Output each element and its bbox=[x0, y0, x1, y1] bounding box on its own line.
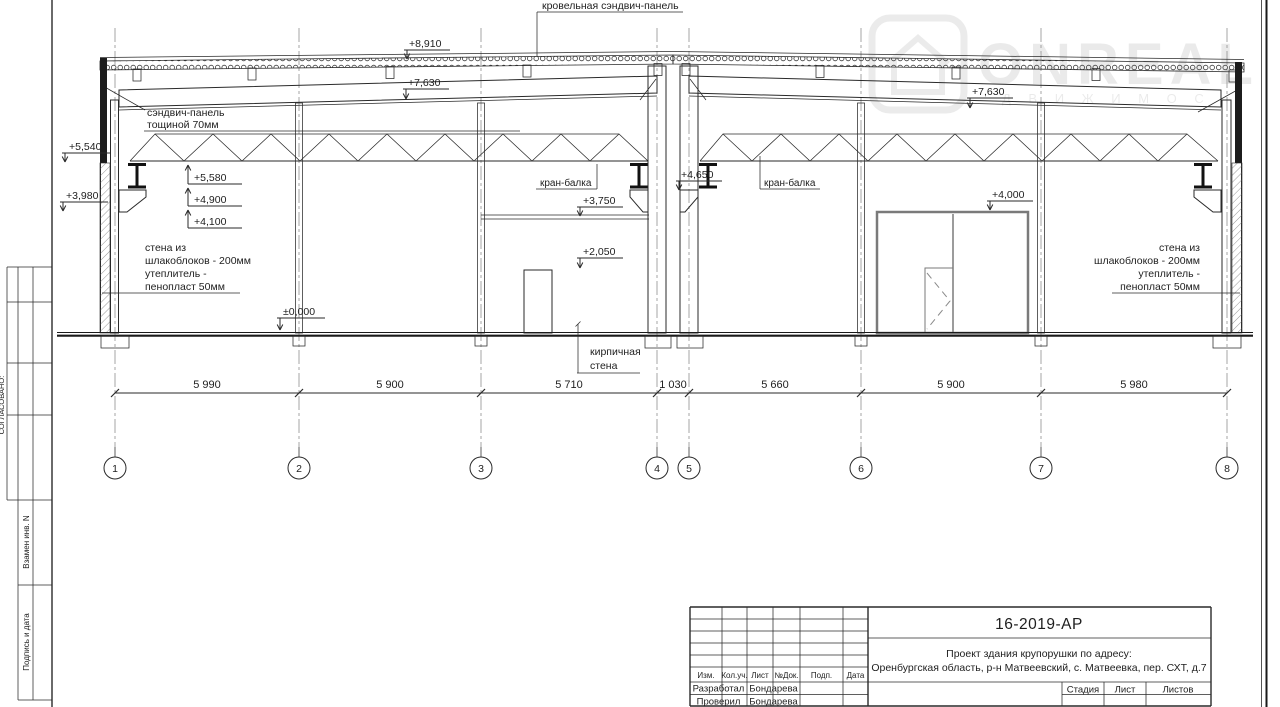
sidebar-agreed-label: СОГЛАСОВАНО: bbox=[0, 376, 6, 435]
svg-text:стена из: стена из bbox=[145, 242, 186, 254]
sandwich-panel-label: сэндвич-панель тощиной 70мм bbox=[144, 107, 520, 131]
svg-text:стена: стена bbox=[590, 360, 618, 372]
title-block: Изм. Кол.уч. Лист №Док. Подп. Дата Разра… bbox=[690, 607, 1211, 707]
svg-text:+7,630: +7,630 bbox=[972, 86, 1005, 98]
crane-beam-i-section bbox=[630, 165, 648, 188]
elevation-door-top: +2,050 bbox=[577, 246, 623, 268]
crane-beam-i-section bbox=[1194, 165, 1212, 188]
dimension-value: 5 980 bbox=[1120, 379, 1148, 391]
sidebar-replace-inv-label: Взамен инв. N bbox=[22, 515, 31, 569]
truss-right bbox=[700, 134, 1218, 161]
axis-bubble-1: 1 bbox=[104, 447, 126, 479]
svg-text:+2,050: +2,050 bbox=[583, 246, 616, 258]
stage-label: Стадия bbox=[1067, 685, 1099, 696]
svg-text:+4,000: +4,000 bbox=[992, 189, 1025, 201]
svg-text:+4,900: +4,900 bbox=[194, 194, 227, 206]
svg-text:кирпичная: кирпичная bbox=[590, 346, 641, 358]
roof-panel-label: кровельная сэндвич-панель bbox=[537, 0, 683, 56]
section-drawing-canvas: ONREAL Д В И Ж И М О С bbox=[0, 0, 1280, 707]
svg-text:+8,910: +8,910 bbox=[409, 38, 442, 50]
crane-beam-label-left: кран-балка bbox=[536, 164, 597, 189]
svg-text:пенопласт 50мм: пенопласт 50мм bbox=[145, 281, 225, 293]
door-opening bbox=[524, 270, 552, 333]
elevation-roof-top: +8,910 bbox=[404, 38, 450, 59]
row-developed-role: Разработал bbox=[693, 684, 745, 695]
svg-text:5: 5 bbox=[686, 463, 692, 475]
elevation-ground: ±0,000 bbox=[277, 306, 325, 330]
svg-text:4: 4 bbox=[654, 463, 660, 475]
document-number: 16-2019-АР bbox=[995, 616, 1083, 633]
svg-text:2: 2 bbox=[296, 463, 302, 475]
svg-text:+4,650: +4,650 bbox=[681, 169, 714, 181]
elevation-crane-rail: +4,900 bbox=[185, 188, 242, 206]
brick-wall-label: кирпичная стена bbox=[576, 322, 641, 374]
svg-text:тощиной 70мм: тощиной 70мм bbox=[147, 119, 219, 131]
axis-bubble-7: 7 bbox=[1030, 447, 1052, 479]
col-header-list: Лист bbox=[751, 671, 769, 680]
right-wall bbox=[1222, 62, 1242, 333]
left-wall bbox=[100, 58, 119, 333]
svg-text:шлакоблоков - 200мм: шлакоблоков - 200мм bbox=[145, 255, 251, 267]
sheet-label: Лист bbox=[1115, 685, 1136, 696]
svg-text:кран-балка: кран-балка bbox=[764, 177, 816, 189]
svg-text:+3,980: +3,980 bbox=[66, 190, 99, 202]
col-header-ndok: №Док. bbox=[774, 671, 798, 680]
svg-text:шлакоблоков - 200мм: шлакоблоков - 200мм bbox=[1094, 255, 1200, 267]
svg-text:кран-балка: кран-балка bbox=[540, 177, 592, 189]
col-header-podp: Подп. bbox=[811, 671, 832, 680]
elevation-gate-top: +4,000 bbox=[987, 189, 1033, 210]
col-header-izm: Изм. bbox=[697, 671, 714, 680]
gate bbox=[877, 212, 1028, 333]
corbel bbox=[119, 190, 146, 212]
svg-text:+5,580: +5,580 bbox=[194, 172, 227, 184]
svg-text:6: 6 bbox=[858, 463, 864, 475]
ground bbox=[57, 333, 1253, 349]
elevation-brick-top: +3,750 bbox=[577, 195, 623, 216]
row-checked-name: Бондарева bbox=[749, 697, 798, 707]
axis-bubble-8: 8 bbox=[1216, 447, 1238, 479]
elevation-corbel: +4,100 bbox=[185, 210, 242, 228]
corbel bbox=[630, 190, 648, 212]
svg-text:7: 7 bbox=[1038, 463, 1044, 475]
svg-text:+3,750: +3,750 bbox=[583, 195, 616, 207]
dimension-value: 5 660 bbox=[761, 379, 789, 391]
wicket-door bbox=[925, 268, 953, 333]
svg-text:3: 3 bbox=[478, 463, 484, 475]
crane-beams bbox=[119, 165, 1221, 213]
svg-text:утеплитель -: утеплитель - bbox=[145, 268, 207, 280]
dimension-chain: 5 990 5 900 5 710 1 030 5 660 5 900 5 98… bbox=[111, 379, 1231, 397]
dimension-value: 1 030 bbox=[659, 379, 687, 391]
crane-beam-i-section bbox=[128, 165, 146, 188]
svg-text:+4,100: +4,100 bbox=[194, 216, 227, 228]
row-developed-name: Бондарева bbox=[749, 684, 798, 695]
elevation-truss-bottom: +5,580 bbox=[185, 165, 242, 184]
col-header-data: Дата bbox=[847, 671, 865, 680]
sidebar-stamp: СОГЛАСОВАНО: Взамен инв. N Подпись и дат… bbox=[0, 267, 52, 700]
axis-bubble-3: 3 bbox=[470, 447, 492, 479]
svg-text:8: 8 bbox=[1224, 463, 1230, 475]
axis-bubbles: 1 2 3 4 5 6 7 8 bbox=[104, 447, 1238, 479]
axis-bubble-4: 4 bbox=[646, 447, 668, 479]
dimension-value: 5 900 bbox=[937, 379, 965, 391]
svg-text:кровельная сэндвич-панель: кровельная сэндвич-панель bbox=[542, 0, 679, 12]
svg-text:1: 1 bbox=[112, 463, 118, 475]
svg-text:утеплитель -: утеплитель - bbox=[1138, 268, 1200, 280]
drawing-sheet: ONREAL Д В И Ж И М О С bbox=[0, 0, 1280, 707]
svg-text:пенопласт 50мм: пенопласт 50мм bbox=[1120, 281, 1200, 293]
col-header-koluch: Кол.уч. bbox=[721, 671, 747, 680]
svg-text:+5,540: +5,540 bbox=[69, 141, 102, 153]
dimension-value: 5 710 bbox=[555, 379, 583, 391]
svg-text:стена из: стена из bbox=[1159, 242, 1200, 254]
corbel bbox=[1194, 190, 1221, 212]
sheets-label: Листов bbox=[1163, 685, 1194, 696]
footing bbox=[645, 336, 671, 348]
door-swing-symbol bbox=[927, 273, 950, 329]
axis-bubble-5: 5 bbox=[678, 447, 700, 479]
sidebar-sign-date-label: Подпись и дата bbox=[22, 613, 31, 671]
svg-text:сэндвич-панель: сэндвич-панель bbox=[147, 107, 225, 119]
footing bbox=[677, 336, 703, 348]
svg-text:±0,000: ±0,000 bbox=[283, 306, 315, 318]
row-checked-role: Проверил bbox=[697, 697, 741, 707]
axis-bubble-2: 2 bbox=[288, 447, 310, 479]
wall-label-left: стена из шлакоблоков - 200мм утеплитель … bbox=[102, 242, 251, 293]
svg-text:+7,630: +7,630 bbox=[408, 77, 441, 89]
dimension-value: 5 990 bbox=[193, 379, 221, 391]
wall-label-right: стена из шлакоблоков - 200мм утеплитель … bbox=[1094, 242, 1240, 293]
elevation-beam-left: +7,630 bbox=[403, 77, 449, 99]
dimension-value: 5 900 bbox=[376, 379, 404, 391]
axis-bubble-6: 6 bbox=[850, 447, 872, 479]
project-title-line2: Оренбургская область, р-н Матвеевский, с… bbox=[871, 662, 1206, 674]
truss-left bbox=[130, 134, 648, 161]
project-title-line1: Проект здания крупорушки по адресу: bbox=[946, 648, 1132, 660]
